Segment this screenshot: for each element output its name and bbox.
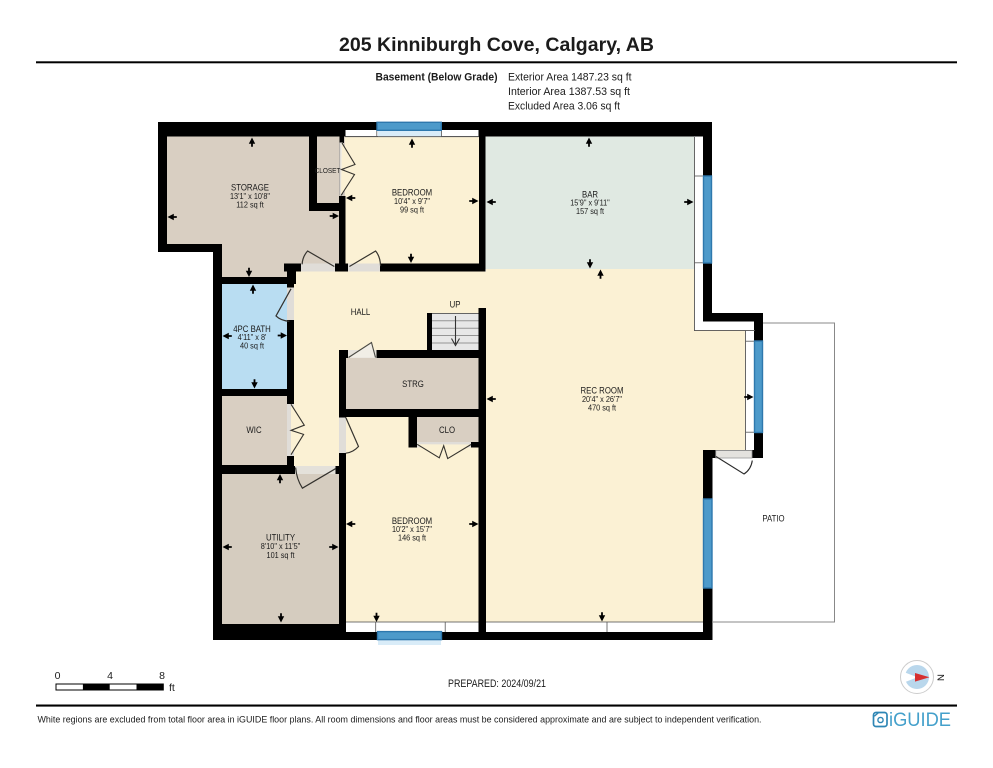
svg-text:99 sq ft: 99 sq ft — [400, 205, 425, 215]
svg-text:157 sq ft: 157 sq ft — [576, 206, 605, 216]
svg-text:iGUIDE: iGUIDE — [889, 710, 951, 731]
svg-text:PATIO: PATIO — [762, 513, 785, 524]
svg-text:146 sq ft: 146 sq ft — [398, 533, 427, 543]
svg-text:470 sq ft: 470 sq ft — [588, 403, 617, 413]
svg-text:PREPARED: 2024/09/21: PREPARED: 2024/09/21 — [448, 678, 546, 690]
svg-text:ft: ft — [169, 682, 175, 694]
svg-text:STRG: STRG — [402, 379, 424, 390]
svg-text:0: 0 — [55, 670, 61, 682]
svg-text:WIC: WIC — [246, 425, 261, 436]
svg-text:CLOSET: CLOSET — [315, 168, 341, 176]
svg-text:112 sq ft: 112 sq ft — [236, 200, 264, 210]
svg-text:40 sq ft: 40 sq ft — [240, 341, 265, 351]
svg-text:HALL: HALL — [351, 307, 371, 318]
svg-text:Excluded Area 3.06 sq ft: Excluded Area 3.06 sq ft — [508, 101, 620, 113]
svg-text:205 Kinniburgh Cove, Calgary,: 205 Kinniburgh Cove, Calgary, AB — [339, 34, 654, 56]
svg-text:White regions are excluded fro: White regions are excluded from total fl… — [38, 714, 762, 724]
svg-text:Interior Area 1387.53 sq ft: Interior Area 1387.53 sq ft — [508, 86, 630, 98]
svg-text:CLO: CLO — [439, 424, 455, 435]
svg-text:4: 4 — [107, 670, 113, 682]
svg-text:Exterior Area 1487.23 sq ft: Exterior Area 1487.23 sq ft — [508, 72, 632, 84]
svg-text:101 sq ft: 101 sq ft — [266, 550, 295, 560]
svg-text:8: 8 — [159, 670, 165, 682]
svg-text:N: N — [935, 674, 946, 681]
svg-text:Basement (Below Grade): Basement (Below Grade) — [376, 72, 498, 84]
svg-text:UP: UP — [450, 299, 461, 310]
